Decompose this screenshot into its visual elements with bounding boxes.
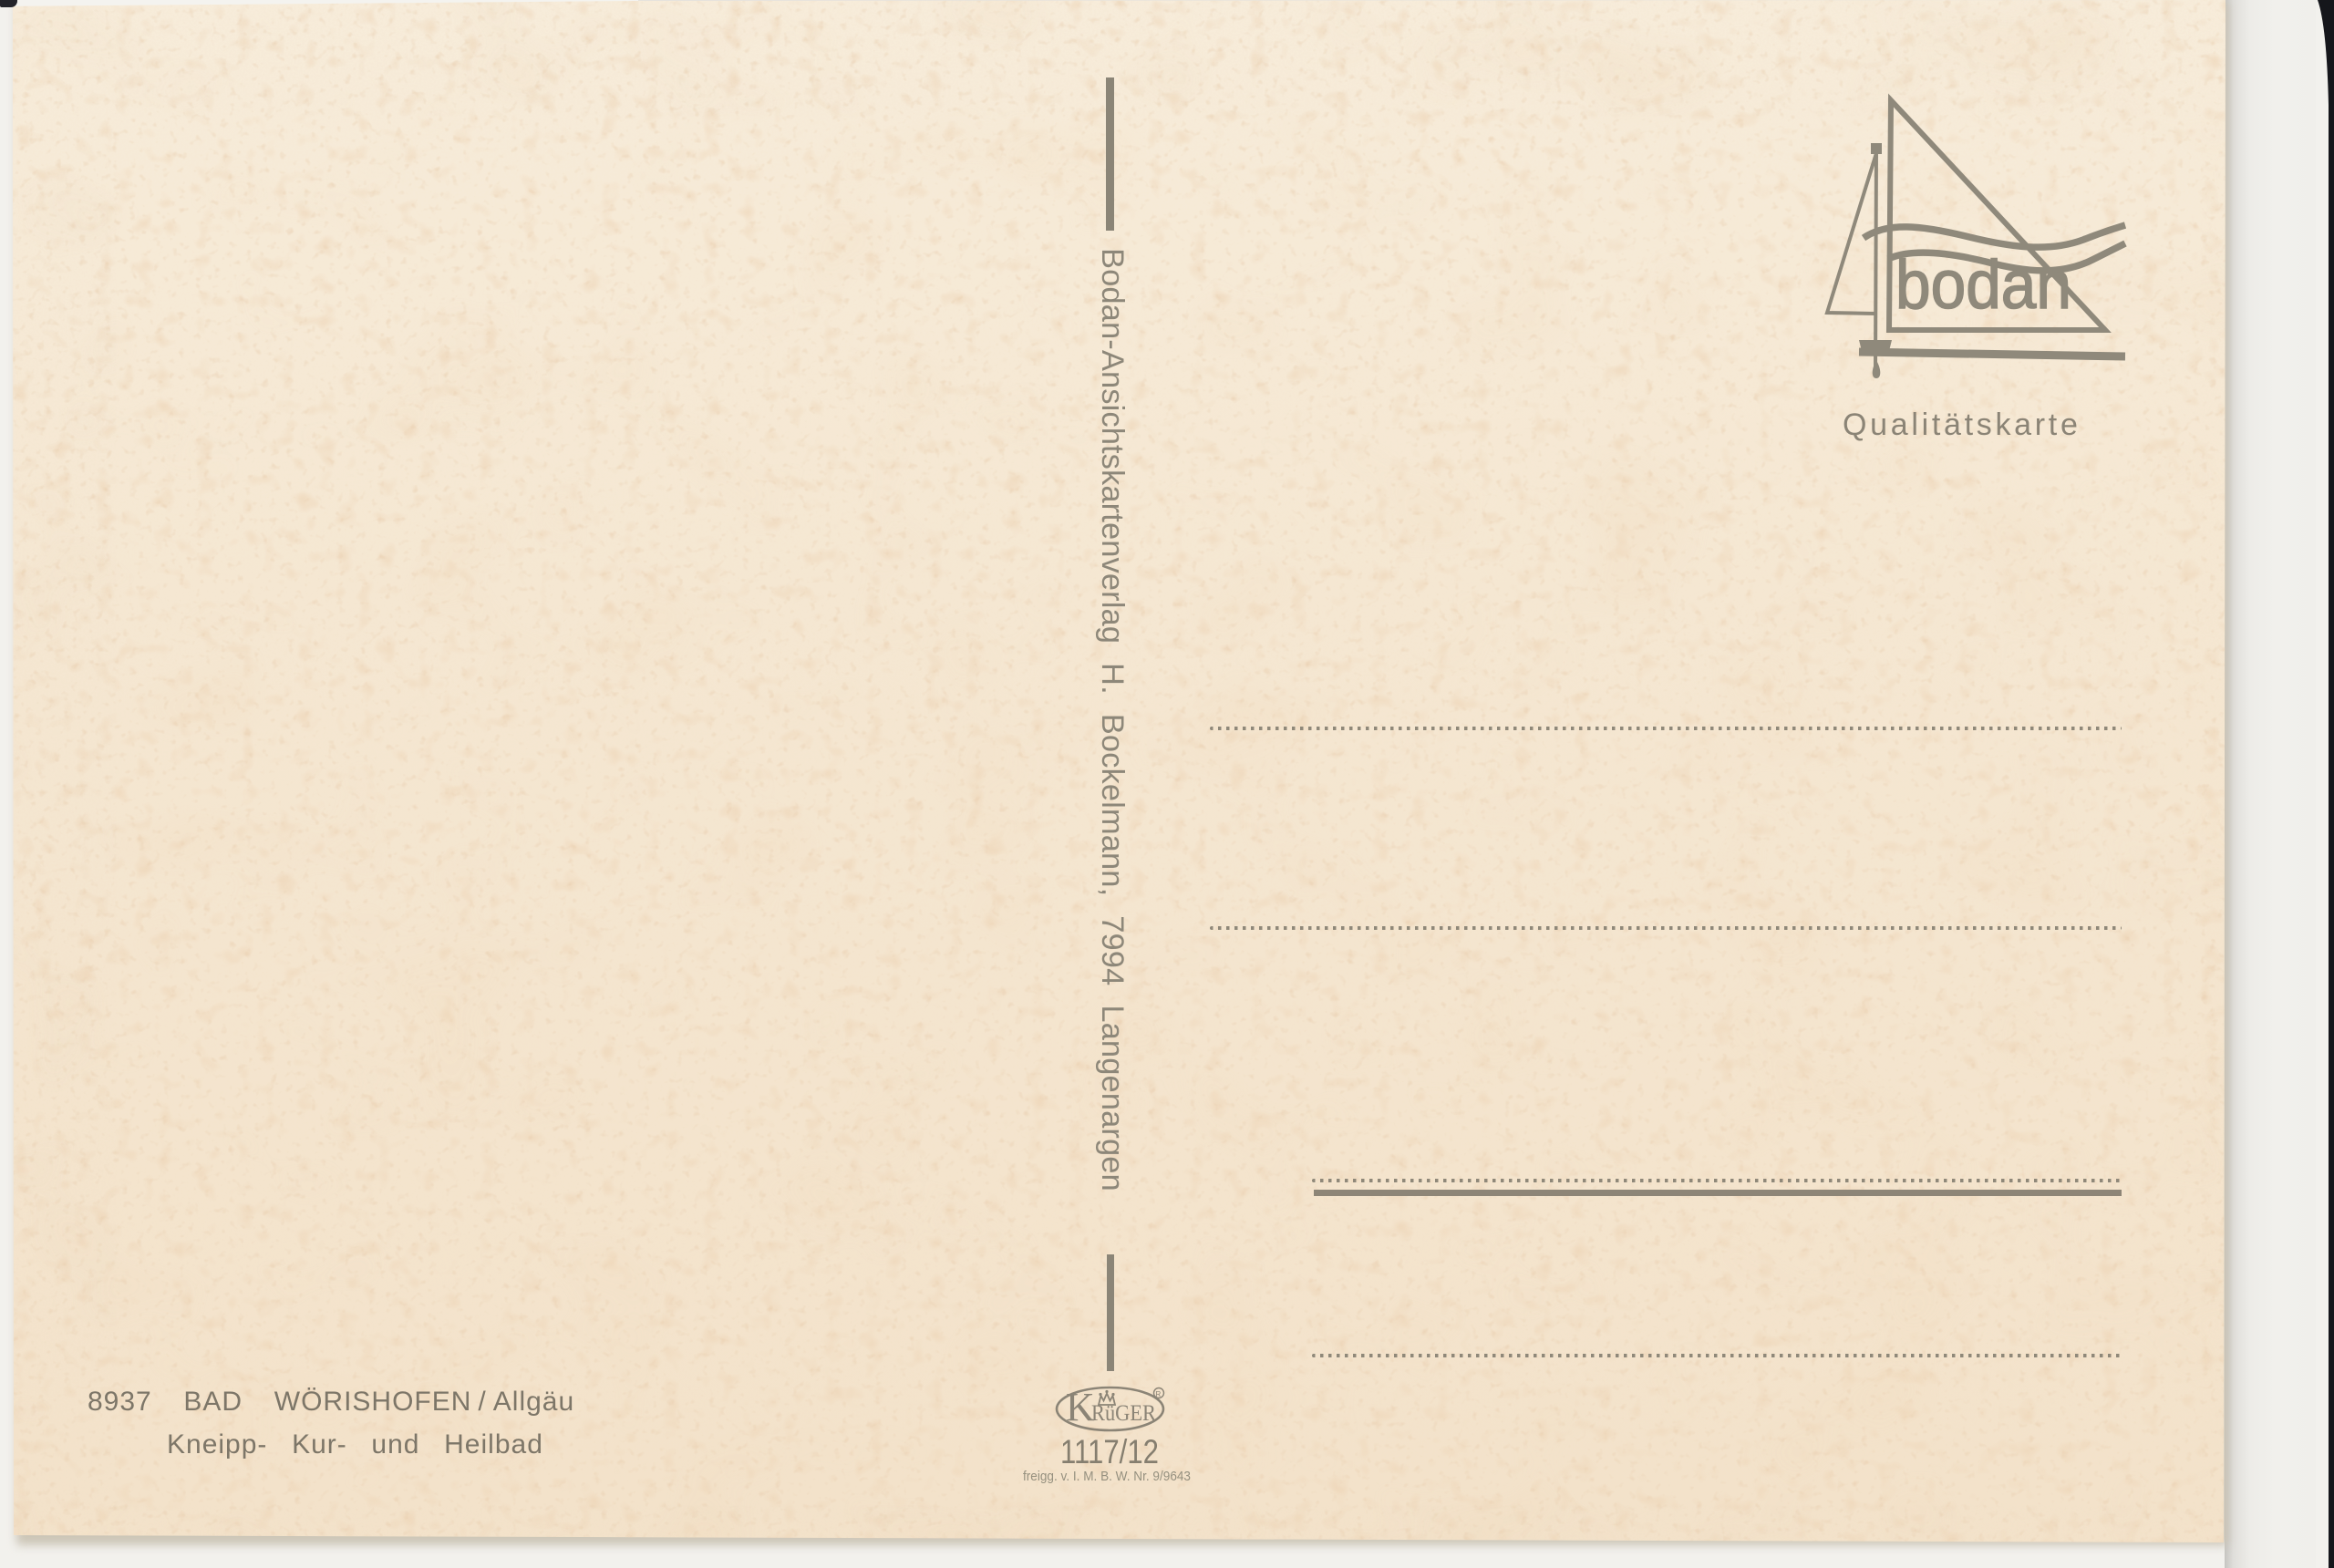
svg-text:R: R xyxy=(1156,1390,1162,1398)
svg-text:bodan: bodan xyxy=(1895,246,2071,323)
svg-text:freigg. v. I. M. B. W. Nr. 9/: freigg. v. I. M. B. W. Nr. 9/9643 xyxy=(1023,1469,1191,1484)
svg-text:1117/12: 1117/12 xyxy=(1060,1433,1159,1470)
